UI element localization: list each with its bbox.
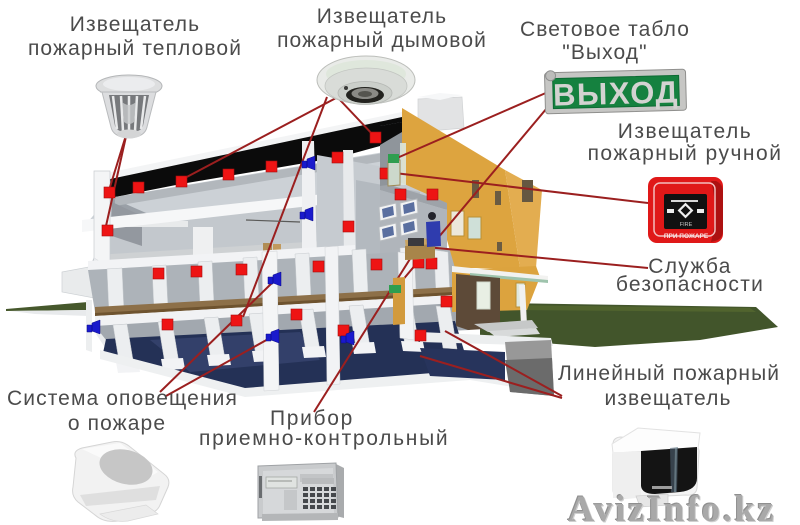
svg-text:FIRE: FIRE [680, 222, 693, 228]
svg-text:ВЫХОД: ВЫХОД [553, 74, 680, 112]
svg-text:ПРИ ПОЖАРЕ: ПРИ ПОЖАРЕ [664, 233, 709, 240]
